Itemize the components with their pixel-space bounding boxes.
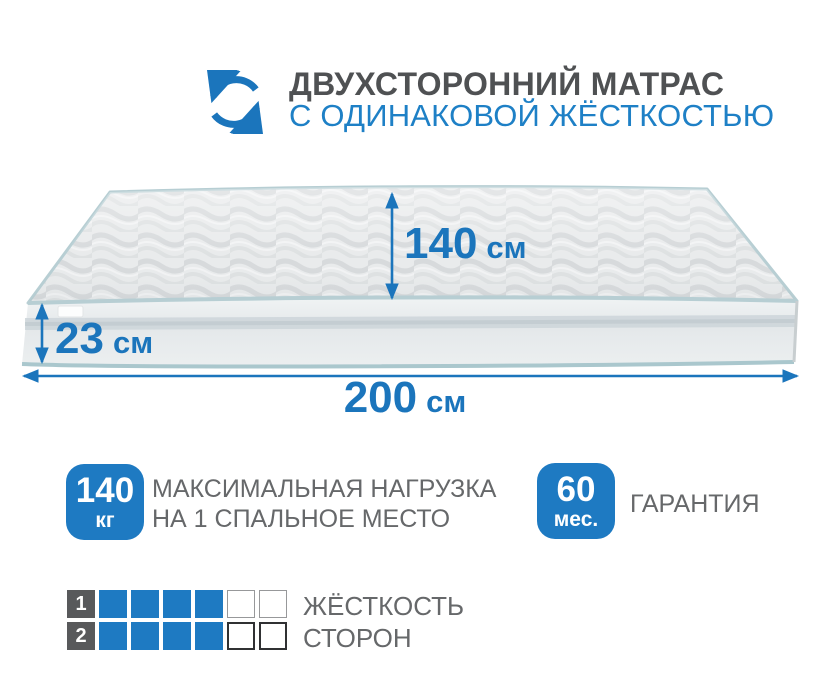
hardness-cell-filled [99, 622, 127, 650]
hardness-scale: 1 2 [67, 590, 287, 654]
height-unit: см [113, 327, 153, 358]
infographic-page: ДВУХСТОРОННИЙ МАТРАС С ОДИНАКОВОЙ ЖЁСТКО… [0, 0, 816, 700]
height-value: 23 [55, 317, 104, 361]
depth-dimension-label: 140 см [404, 222, 527, 266]
hardness-row-2: 2 [67, 622, 287, 650]
warranty-label: ГАРАНТИЯ [630, 489, 760, 519]
hardness-cell-empty [259, 590, 287, 618]
hardness-cell-empty [259, 622, 287, 650]
warranty-unit: мес. [554, 509, 598, 530]
depth-value: 140 [404, 222, 477, 266]
max-load-label-line2: НА 1 СПАЛЬНОЕ МЕСТО [152, 504, 496, 534]
depth-unit: см [486, 232, 526, 263]
hardness-label-line1: ЖЁСТКОСТЬ [303, 593, 464, 619]
max-load-badge: 140 кг [66, 464, 144, 540]
hardness-cell-filled [163, 622, 191, 650]
hardness-label-line2: СТОРОН [303, 625, 412, 651]
hardness-row-1: 1 [67, 590, 287, 618]
hardness-cell-filled [163, 590, 191, 618]
hardness-cell-empty [227, 590, 255, 618]
warranty-value: 60 [557, 472, 596, 507]
hardness-row-1-number: 1 [67, 590, 95, 618]
page-subtitle: С ОДИНАКОВОЙ ЖЁСТКОСТЬЮ [289, 100, 774, 131]
hardness-row-2-number: 2 [67, 622, 95, 650]
hardness-cell-empty [227, 622, 255, 650]
length-value: 200 [344, 376, 417, 420]
hardness-cell-filled [99, 590, 127, 618]
page-title: ДВУХСТОРОННИЙ МАТРАС [289, 68, 724, 100]
height-dimension-label: 23 см [55, 317, 153, 361]
max-load-label: МАКСИМАЛЬНАЯ НАГРУЗКА НА 1 СПАЛЬНОЕ МЕСТ… [152, 474, 496, 534]
hardness-cell-filled [195, 622, 223, 650]
warranty-badge: 60 мес. [537, 463, 615, 539]
length-unit: см [426, 386, 466, 417]
hardness-cell-filled [195, 590, 223, 618]
length-dimension-label: 200 см [290, 376, 520, 420]
flip-arrows-icon [203, 70, 267, 134]
max-load-label-line1: МАКСИМАЛЬНАЯ НАГРУЗКА [152, 474, 496, 504]
hardness-cell-filled [131, 590, 159, 618]
max-load-value: 140 [76, 473, 134, 508]
hardness-cell-filled [131, 622, 159, 650]
max-load-unit: кг [95, 510, 114, 531]
